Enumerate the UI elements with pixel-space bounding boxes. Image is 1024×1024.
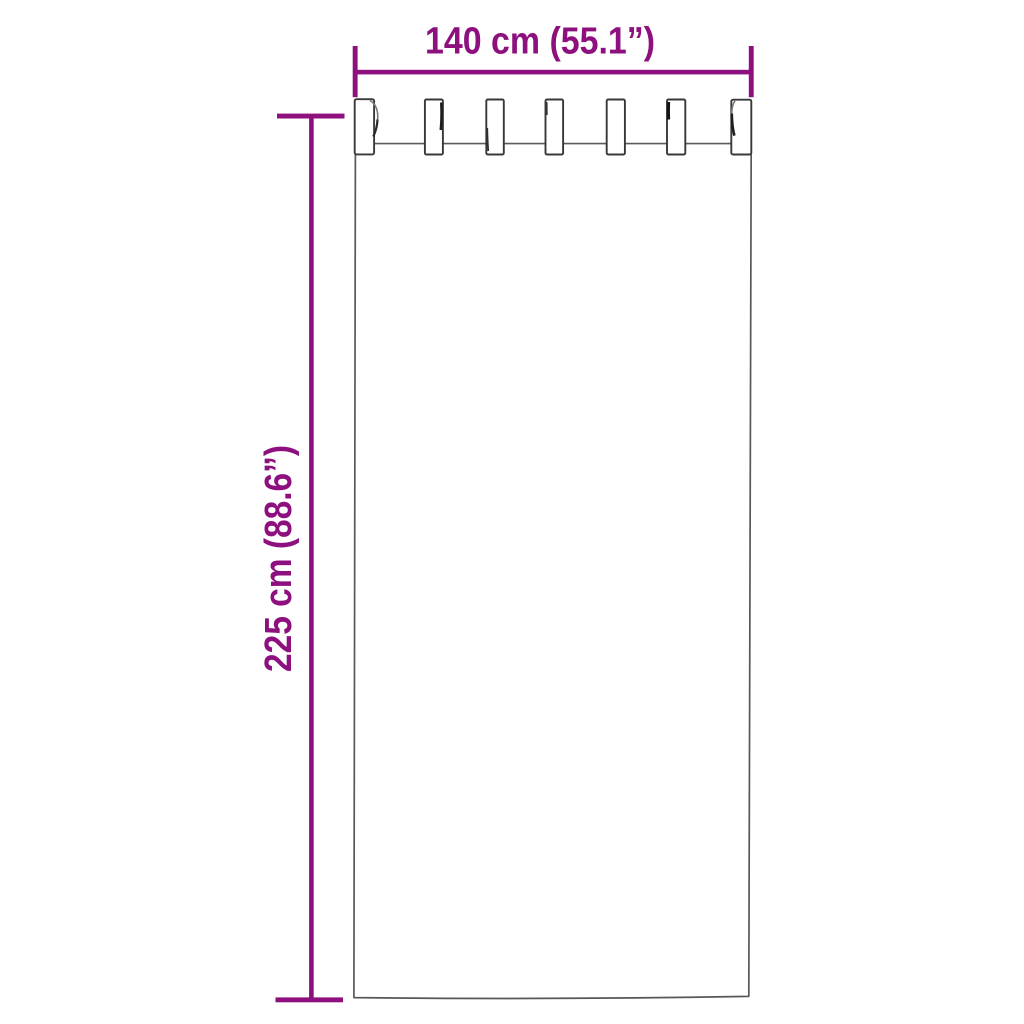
svg-text:140 cm (55.1”): 140 cm (55.1”) [425, 20, 655, 63]
svg-text:225 cm (88.6”): 225 cm (88.6”) [257, 445, 300, 672]
